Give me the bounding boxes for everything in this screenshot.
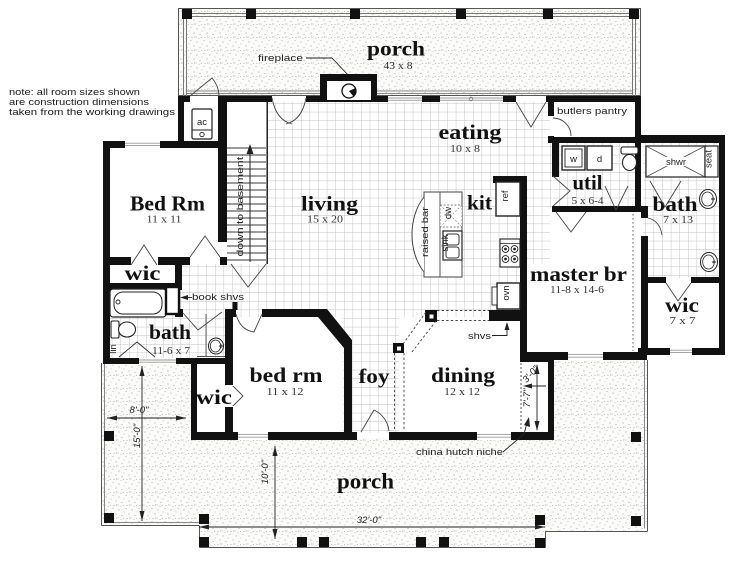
- svg-text:Bed Rm: Bed Rm: [130, 192, 206, 216]
- svg-text:down to basement.: down to basement.: [235, 154, 246, 257]
- svg-text:fireplace: fireplace: [258, 53, 303, 64]
- svg-text:ovn: ovn: [501, 285, 512, 300]
- svg-text:porch: porch: [337, 469, 394, 494]
- svg-text:32'-0": 32'-0": [357, 515, 382, 526]
- svg-text:d: d: [597, 154, 602, 165]
- svg-text:10'-0": 10'-0": [260, 459, 271, 484]
- svg-text:lin: lin: [108, 344, 119, 354]
- svg-text:15'-0": 15'-0": [132, 423, 143, 448]
- svg-text:master br: master br: [530, 262, 627, 286]
- svg-text:raised bar: raised bar: [420, 207, 431, 257]
- svg-text:ref: ref: [500, 190, 511, 201]
- svg-text:7 x 7: 7 x 7: [670, 315, 697, 327]
- svg-text:bed rm: bed rm: [250, 363, 324, 387]
- svg-text:sink: sink: [440, 234, 451, 251]
- svg-text:11 x 11: 11 x 11: [147, 214, 182, 226]
- svg-text:5 x 6-4: 5 x 6-4: [572, 195, 605, 207]
- svg-text:taken from the working drawing: taken from the working drawings: [9, 107, 175, 118]
- svg-text:porch: porch: [367, 37, 425, 61]
- svg-text:shvs: shvs: [468, 331, 491, 342]
- svg-text:living: living: [301, 192, 359, 216]
- svg-text:dw: dw: [443, 207, 454, 219]
- svg-text:shwr: shwr: [666, 157, 686, 168]
- svg-text:seat: seat: [704, 150, 715, 168]
- svg-text:ac: ac: [197, 117, 207, 128]
- svg-text:15 x 20: 15 x 20: [307, 214, 344, 226]
- svg-text:china hutch niche: china hutch niche: [416, 447, 503, 458]
- svg-text:7 x 13: 7 x 13: [663, 214, 694, 226]
- svg-text:kit: kit: [467, 191, 492, 215]
- svg-text:w: w: [569, 154, 577, 165]
- svg-text:wic: wic: [665, 293, 699, 317]
- svg-text:bath: bath: [653, 192, 698, 216]
- svg-text:util: util: [573, 171, 603, 195]
- svg-text:43 x 8: 43 x 8: [384, 60, 414, 72]
- svg-text:11-8 x 14-6: 11-8 x 14-6: [550, 284, 605, 296]
- svg-text:eating: eating: [439, 120, 503, 144]
- svg-text:8'-0": 8'-0": [130, 405, 150, 416]
- svg-text:11-6 x 7: 11-6 x 7: [152, 345, 191, 357]
- svg-text:10 x 8: 10 x 8: [450, 143, 481, 155]
- svg-text:12 x 12: 12 x 12: [444, 386, 480, 398]
- svg-text:11 x 12: 11 x 12: [267, 386, 304, 398]
- svg-text:butlers pantry: butlers pantry: [557, 106, 627, 117]
- svg-text:foy: foy: [359, 364, 391, 388]
- svg-text:wic: wic: [196, 385, 232, 409]
- svg-text:bath: bath: [149, 320, 191, 344]
- svg-text:7'-7": 7'-7": [522, 388, 533, 408]
- svg-text:book shvs: book shvs: [192, 292, 244, 303]
- svg-text:wic: wic: [125, 261, 161, 285]
- svg-text:dining: dining: [431, 363, 496, 387]
